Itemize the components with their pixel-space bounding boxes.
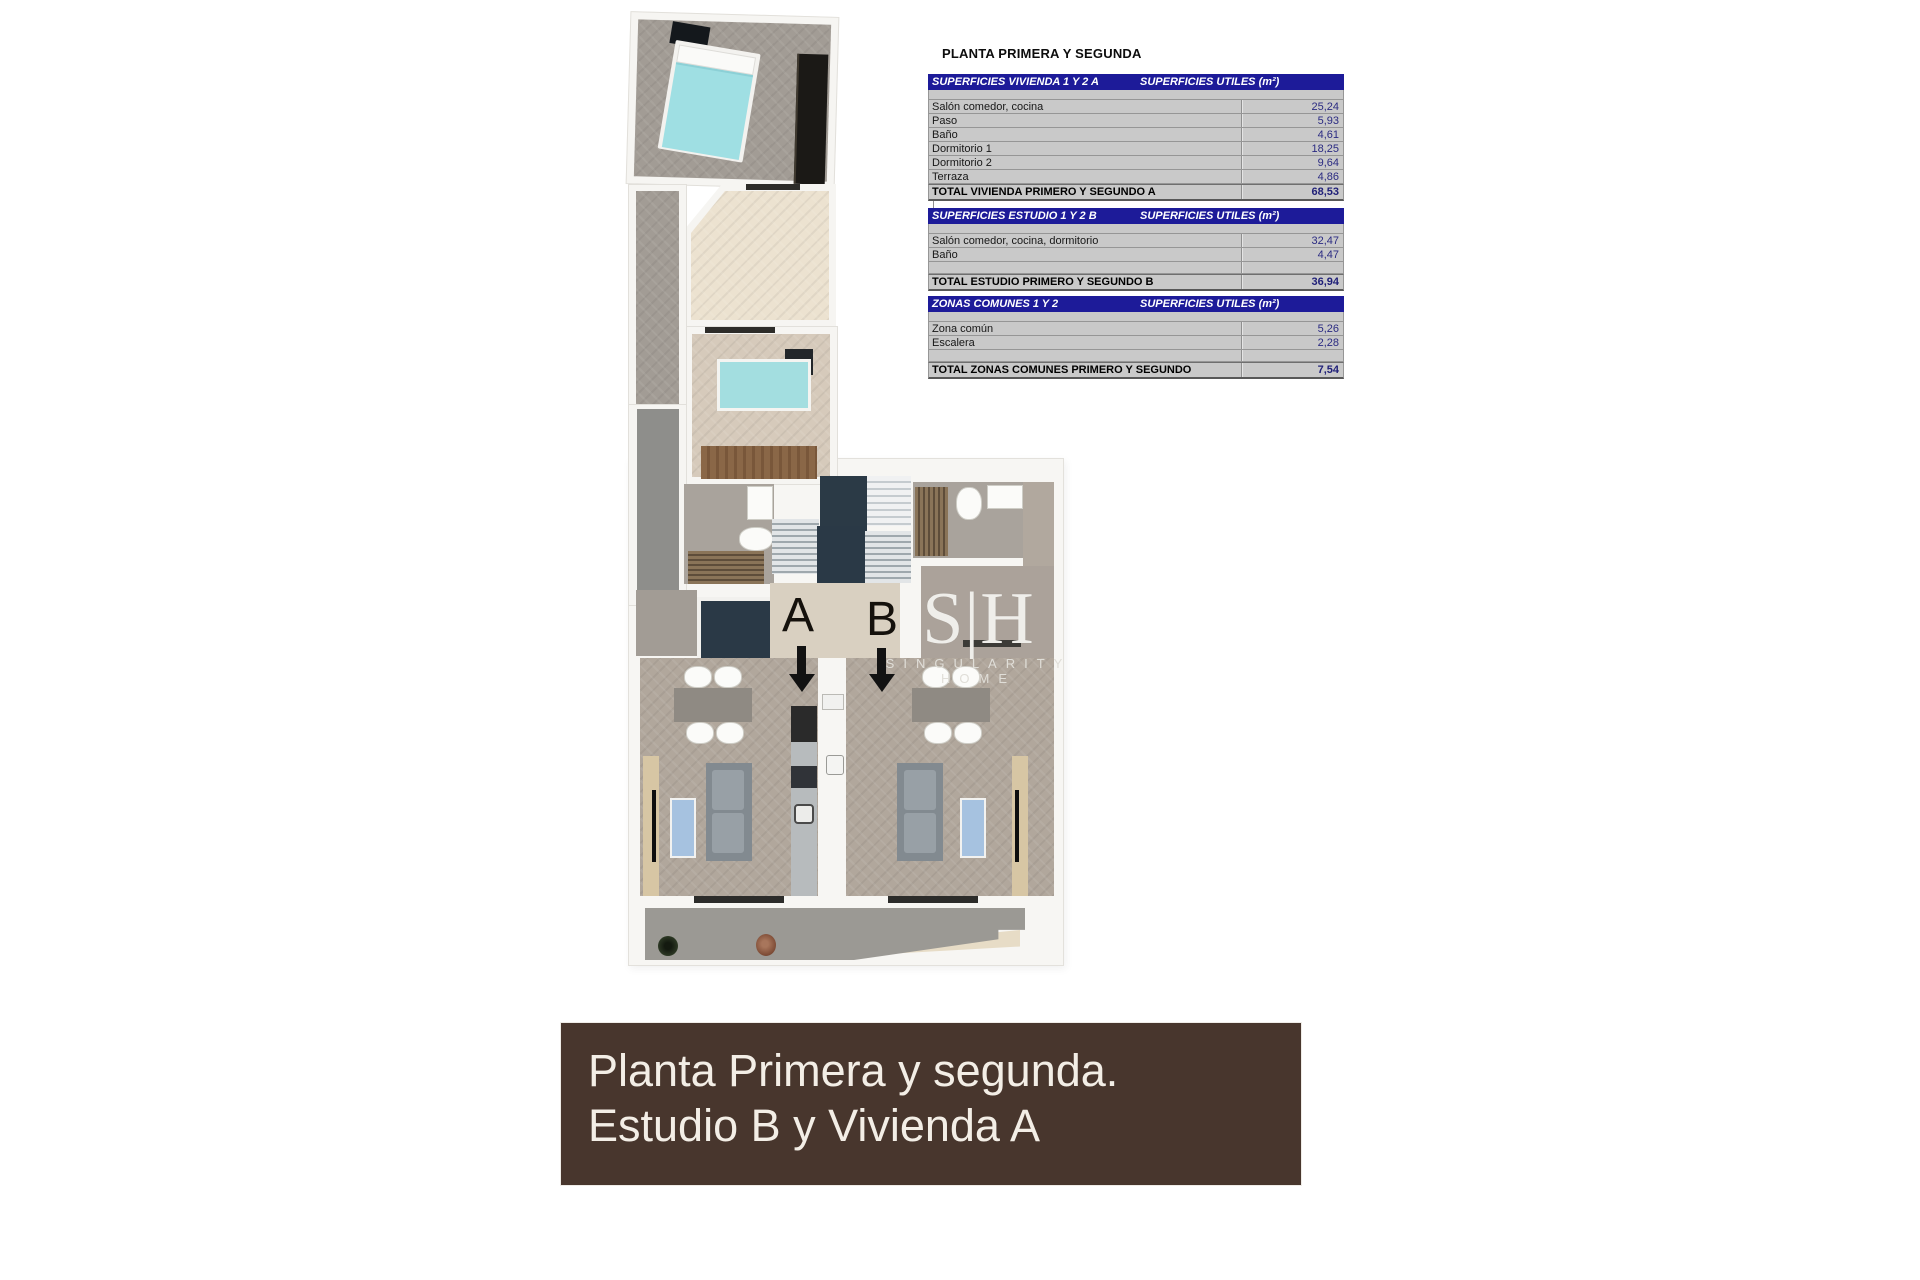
caption-line-1: Planta Primera y segunda. [588, 1043, 1301, 1098]
table-row: Paso 5,93 [928, 114, 1344, 128]
plant-icon [658, 936, 678, 956]
table-row: Baño 4,47 [928, 248, 1344, 262]
room-dormitorio-1 [626, 11, 840, 190]
watermark: S|H SINGULARITY HOME [866, 586, 1091, 686]
table-row: Dormitorio 2 9,64 [928, 156, 1344, 170]
row-label: Zona común [929, 322, 1242, 335]
row-value: 9,64 [1242, 156, 1343, 169]
unit-a-arrow-head [789, 674, 815, 692]
toilet-b [956, 487, 982, 520]
rug-a [670, 798, 696, 858]
page: S|H SINGULARITY HOME A B PLANTA PRIMERA … [0, 0, 1920, 1280]
total-value: 68,53 [1242, 185, 1343, 199]
window-lintel [888, 896, 978, 903]
kitchen-dark-band [791, 766, 817, 788]
spacer-row [928, 224, 1344, 234]
toilet-a [739, 527, 773, 551]
unit-a-label: A [782, 594, 814, 638]
row-label: Salón comedor, cocina [929, 100, 1242, 113]
empty-row [928, 262, 1344, 274]
units-header: SUPERFICIES UTILES (m²) [1140, 298, 1279, 310]
table-title: SUPERFICIES ESTUDIO 1 Y 2 B [932, 210, 1097, 222]
tv-b [1015, 790, 1019, 862]
chair [924, 722, 952, 744]
spacer-row [928, 312, 1344, 322]
chair [954, 722, 982, 744]
chair [716, 722, 744, 744]
table-header: ZONAS COMUNES 1 Y 2 SUPERFICIES UTILES (… [928, 296, 1344, 312]
caption-banner: Planta Primera y segunda. Estudio B y Vi… [560, 1022, 1302, 1186]
sofa-a-cushion [712, 770, 744, 810]
total-label: TOTAL ESTUDIO PRIMERO Y SEGUNDO B [929, 275, 1242, 289]
terraza-floor [637, 409, 679, 601]
navy-tile-mid [817, 526, 867, 583]
units-header: SUPERFICIES UTILES (m²) [1140, 210, 1279, 222]
unit-a-arrow [797, 646, 806, 676]
total-value: 7,54 [1242, 363, 1343, 377]
row-value: 25,24 [1242, 100, 1343, 113]
bath-a-cabinet [747, 486, 773, 520]
row-label: Dormitorio 2 [929, 156, 1242, 169]
row-label: Baño [929, 248, 1242, 261]
window-lintel [746, 184, 800, 190]
sofa-b-cushion [904, 813, 936, 853]
row-label: Baño [929, 128, 1242, 141]
row-label [929, 262, 1242, 273]
table-estudio-b: SUPERFICIES ESTUDIO 1 Y 2 B SUPERFICIES … [928, 208, 1344, 291]
table-row: Escalera 2,28 [928, 336, 1344, 350]
table-row: Zona común 5,26 [928, 322, 1344, 336]
empty-row [928, 350, 1344, 362]
stairs-upper [867, 476, 911, 526]
spacer-row [928, 90, 1344, 100]
terraza-strip [628, 404, 687, 606]
row-value [1242, 350, 1343, 361]
row-value: 2,28 [1242, 336, 1343, 349]
appliance [826, 755, 844, 775]
cooktop [791, 706, 817, 742]
table-total-row: TOTAL ESTUDIO PRIMERO Y SEGUNDO B 36,94 [928, 274, 1344, 291]
page-title: PLANTA PRIMERA Y SEGUNDA [942, 46, 1142, 61]
row-label [929, 350, 1242, 361]
caption-line-2: Estudio B y Vivienda A [588, 1098, 1301, 1153]
row-value: 32,47 [1242, 234, 1343, 247]
stairs-b [865, 531, 911, 583]
row-value: 5,26 [1242, 322, 1343, 335]
sink-b [987, 485, 1023, 509]
total-value: 36,94 [1242, 275, 1343, 289]
room-cream [684, 184, 836, 327]
row-label: Escalera [929, 336, 1242, 349]
table-row: Dormitorio 1 18,25 [928, 142, 1344, 156]
corridor-left [628, 184, 687, 410]
corridor-floor [636, 191, 679, 405]
units-header: SUPERFICIES UTILES (m²) [1140, 76, 1279, 88]
chair [714, 666, 742, 688]
chair [684, 666, 712, 688]
plant-icon [756, 934, 776, 956]
table-row: Salón comedor, cocina 25,24 [928, 100, 1344, 114]
row-value [1242, 262, 1343, 273]
rug-b [960, 798, 986, 858]
row-value: 4,47 [1242, 248, 1343, 261]
row-value: 4,86 [1242, 170, 1343, 183]
row-label: Dormitorio 1 [929, 142, 1242, 155]
total-label: TOTAL VIVIENDA PRIMERO Y SEGUNDO A [929, 185, 1242, 199]
dining-table-b [912, 688, 990, 722]
row-label: Paso [929, 114, 1242, 127]
paso-floor [636, 590, 697, 656]
bed-2 [717, 359, 811, 411]
shower-navy-a [697, 597, 770, 659]
table-vivienda-a: SUPERFICIES VIVIENDA 1 Y 2 A SUPERFICIES… [928, 74, 1344, 201]
radiator-wood-b [915, 487, 948, 556]
watermark-name: SINGULARITY HOME [866, 656, 1091, 686]
room-cream-floor [691, 191, 829, 320]
tv-board-a [643, 756, 659, 896]
kitchen-sink [794, 804, 814, 824]
bench-wood-a [688, 551, 764, 584]
row-value: 5,93 [1242, 114, 1343, 127]
window-lintel [694, 896, 784, 903]
window-lintel [705, 327, 775, 333]
stairs-a [772, 519, 819, 574]
wardrobe [794, 54, 829, 185]
sofa-a [706, 763, 752, 861]
table-header: SUPERFICIES ESTUDIO 1 Y 2 B SUPERFICIES … [928, 208, 1344, 224]
dining-table-a [674, 688, 752, 722]
sofa-a-cushion [712, 813, 744, 853]
closet-wood [701, 446, 817, 479]
fridge [822, 694, 844, 710]
table-total-row: TOTAL VIVIENDA PRIMERO Y SEGUNDO A 68,53 [928, 184, 1344, 201]
row-value: 18,25 [1242, 142, 1343, 155]
table-title: ZONAS COMUNES 1 Y 2 [932, 298, 1058, 310]
table-total-row: TOTAL ZONAS COMUNES PRIMERO Y SEGUNDO 7,… [928, 362, 1344, 379]
row-label: Terraza [929, 170, 1242, 183]
sofa-b-cushion [904, 770, 936, 810]
table-row: Salón comedor, cocina, dormitorio 32,47 [928, 234, 1344, 248]
table-row: Terraza 4,86 [928, 170, 1344, 184]
bed-1-cover [662, 62, 753, 160]
table-row: Baño 4,61 [928, 128, 1344, 142]
table-zonas-comunes: ZONAS COMUNES 1 Y 2 SUPERFICIES UTILES (… [928, 296, 1344, 379]
row-label: Salón comedor, cocina, dormitorio [929, 234, 1242, 247]
room-dormitorio-2 [684, 326, 838, 485]
total-label: TOTAL ZONAS COMUNES PRIMERO Y SEGUNDO [929, 363, 1242, 377]
table-title: SUPERFICIES VIVIENDA 1 Y 2 A [932, 76, 1099, 88]
sofa-b [897, 763, 943, 861]
row-value: 4,61 [1242, 128, 1343, 141]
table-header: SUPERFICIES VIVIENDA 1 Y 2 A SUPERFICIES… [928, 74, 1344, 90]
chair [686, 722, 714, 744]
watermark-logo: S|H [866, 586, 1091, 652]
tv-a [652, 790, 656, 862]
stair-landing-dark [820, 476, 867, 526]
